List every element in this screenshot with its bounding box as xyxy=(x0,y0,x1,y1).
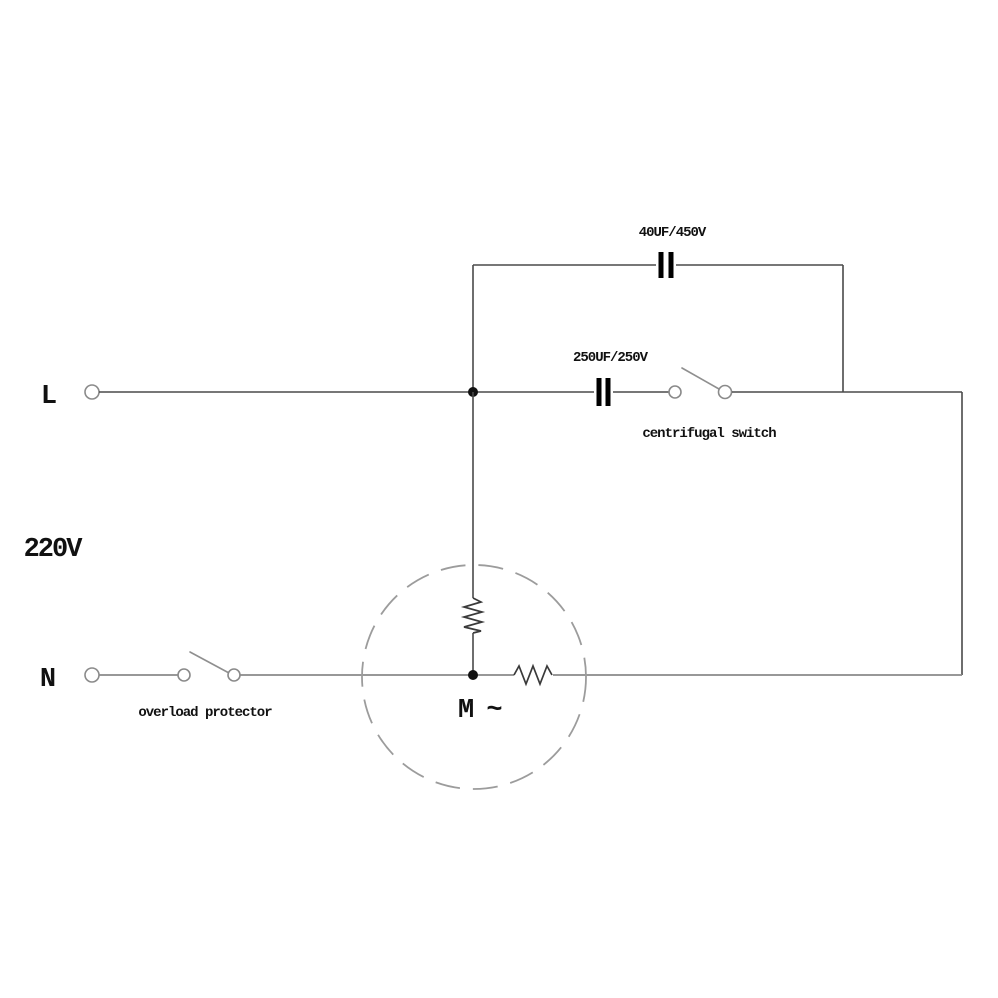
overload-contact-left xyxy=(178,669,190,681)
main-capacitor-branch xyxy=(473,252,843,392)
overload-lever xyxy=(190,652,229,673)
centrifugal-switch-label: centrifugal switch xyxy=(642,426,776,442)
wiring-diagram: 40UF/450V 250UF/250V centrifugal switch … xyxy=(0,0,998,998)
centrifugal-switch xyxy=(669,368,732,399)
live-line xyxy=(85,368,962,598)
overload-contact-right xyxy=(228,669,240,681)
main-capacitor-label: 40UF/450V xyxy=(639,225,707,241)
centrifugal-switch-contact-left xyxy=(669,386,681,398)
aux-winding-resistor xyxy=(464,598,482,633)
overload-protector xyxy=(178,652,240,681)
motor xyxy=(362,565,586,789)
centrifugal-switch-lever xyxy=(682,368,719,389)
voltage-label: 220V xyxy=(24,535,84,565)
l-terminal-circle xyxy=(85,385,99,399)
start-capacitor-label: 250UF/250V xyxy=(573,350,649,366)
main-winding-resistor xyxy=(514,666,552,684)
junction-dot-motor xyxy=(468,670,478,680)
motor-label: M ~ xyxy=(458,696,501,726)
centrifugal-switch-contact-right xyxy=(719,386,732,399)
diagram-svg: 40UF/450V 250UF/250V centrifugal switch … xyxy=(0,0,998,998)
line-n-label: N xyxy=(40,665,55,695)
line-l-label: L xyxy=(41,382,56,412)
overload-protector-label: overload protector xyxy=(138,705,272,721)
n-terminal-circle xyxy=(85,668,99,682)
